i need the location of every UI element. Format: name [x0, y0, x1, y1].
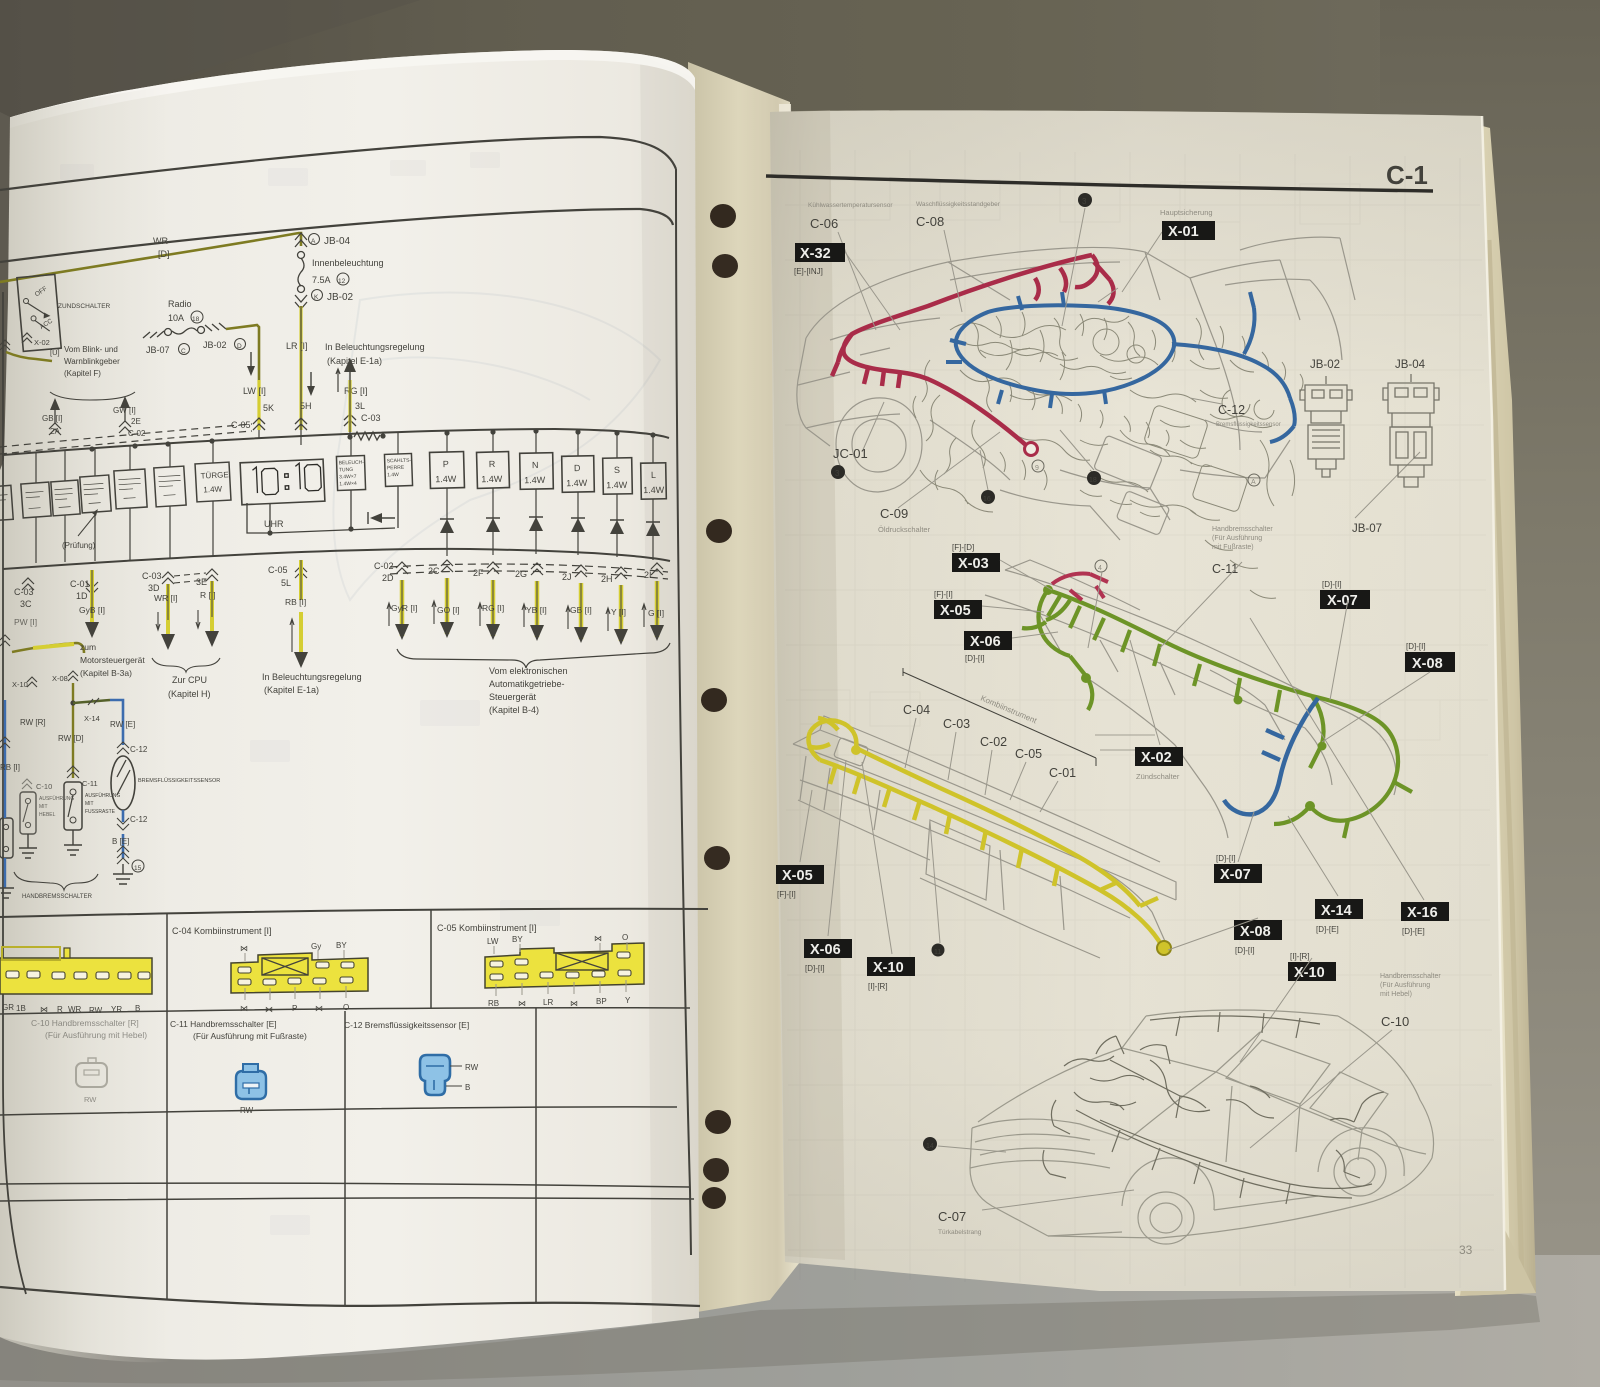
svg-text:LR: LR	[543, 998, 553, 1007]
svg-text:[E]-[INJ]: [E]-[INJ]	[794, 267, 823, 276]
svg-text:1.4W: 1.4W	[643, 485, 665, 495]
svg-text:C-02: C-02	[980, 735, 1007, 749]
svg-text:K: K	[314, 294, 319, 301]
svg-text:G [I]: G [I]	[648, 608, 664, 618]
svg-text:X-01: X-01	[1168, 224, 1199, 240]
svg-text:X-14: X-14	[84, 714, 100, 723]
svg-text:X-10: X-10	[1294, 965, 1325, 981]
svg-text:Vom Blink- und: Vom Blink- und	[64, 345, 118, 354]
svg-text:2H: 2H	[601, 574, 613, 584]
svg-text:B: B	[465, 1083, 470, 1092]
svg-text:[I]-[R]: [I]-[R]	[868, 982, 888, 991]
svg-text:Motorsteuergerät: Motorsteuergerät	[80, 655, 145, 665]
svg-text:JB-02: JB-02	[203, 340, 227, 350]
svg-text:[U]: [U]	[50, 348, 60, 357]
svg-text:Türkabelstrang: Türkabelstrang	[938, 1229, 982, 1236]
svg-text:C-01: C-01	[1049, 766, 1076, 780]
svg-text:7.5A: 7.5A	[312, 275, 331, 285]
svg-text:PERRE: PERRE	[387, 465, 405, 472]
svg-text:C-07: C-07	[938, 1209, 966, 1224]
svg-text:B: B	[135, 1004, 140, 1013]
svg-text:[D]-[I]: [D]-[I]	[1406, 642, 1426, 651]
svg-text:WR: WR	[68, 1005, 82, 1014]
svg-text:C-10: C-10	[36, 782, 52, 791]
svg-text:C-05: C-05	[268, 565, 288, 575]
svg-text:D: D	[574, 463, 581, 473]
svg-text:C-12: C-12	[1218, 403, 1245, 417]
svg-text:18: 18	[1089, 477, 1097, 484]
svg-text:C-12 Bremsflüssigkeitssensor: C-12 Bremsflüssigkeitssensor [E]	[344, 1020, 469, 1030]
svg-text:1.4W: 1.4W	[435, 474, 457, 485]
svg-text:RB [I]: RB [I]	[285, 597, 306, 607]
svg-text:GR: GR	[2, 1003, 14, 1012]
svg-text:C-1: C-1	[1386, 160, 1428, 190]
svg-text:⋈: ⋈	[570, 999, 578, 1008]
svg-text:R [I]: R [I]	[200, 590, 216, 600]
svg-text:3E: 3E	[196, 577, 207, 587]
svg-text:1D: 1D	[76, 591, 88, 601]
svg-text:⋈: ⋈	[594, 934, 602, 943]
svg-text:PW [I]: PW [I]	[14, 617, 37, 627]
svg-text:C-02: C-02	[374, 561, 394, 571]
svg-text:In Beleuchtungsregelung: In Beleuchtungsregelung	[325, 342, 425, 352]
svg-text:O: O	[622, 933, 628, 942]
svg-text:X-10: X-10	[12, 680, 28, 689]
svg-text:S: S	[614, 465, 620, 475]
svg-text:GO [I]: GO [I]	[437, 605, 460, 615]
svg-text:⋈: ⋈	[240, 1004, 248, 1013]
svg-text:X-06: X-06	[970, 634, 1001, 650]
svg-text:X-07: X-07	[1220, 867, 1251, 883]
svg-text:C: C	[181, 348, 186, 355]
svg-text:[D]-[I]: [D]-[I]	[1235, 946, 1255, 955]
svg-text:C-12: C-12	[130, 815, 148, 824]
svg-text:C-03: C-03	[361, 413, 381, 423]
svg-text:C-09: C-09	[880, 506, 908, 521]
svg-text:LR [I]: LR [I]	[286, 341, 308, 351]
svg-text:X-14: X-14	[1321, 903, 1352, 919]
svg-text:3: 3	[1082, 197, 1087, 206]
svg-text:1.4W: 1.4W	[524, 475, 546, 485]
svg-text:X-07: X-07	[1327, 593, 1358, 609]
svg-text:1.4W: 1.4W	[387, 472, 399, 478]
svg-text:YB [I]: YB [I]	[526, 605, 547, 615]
svg-text:[D]-[E]: [D]-[E]	[1316, 925, 1339, 934]
svg-text:RW: RW	[465, 1063, 479, 1072]
svg-text:X-16: X-16	[1407, 905, 1438, 921]
svg-text:FUSSRASTE: FUSSRASTE	[85, 809, 116, 815]
svg-text:zum: zum	[80, 642, 96, 652]
svg-text:14: 14	[926, 1143, 934, 1150]
svg-text:X-03: X-03	[958, 556, 989, 572]
svg-text:5K: 5K	[263, 403, 274, 413]
svg-text:RG [I]: RG [I]	[482, 603, 504, 613]
svg-text:2F: 2F	[473, 568, 484, 578]
svg-text:Waschflüssigkeitsstandgeber: Waschflüssigkeitsstandgeber	[916, 201, 1001, 208]
svg-text:C-04 Kombiinstrument [I]: C-04 Kombiinstrument [I]	[172, 926, 272, 936]
svg-text:(Kapitel H): (Kapitel H)	[168, 689, 211, 699]
svg-text:[D]-[I]: [D]-[I]	[1322, 580, 1342, 589]
svg-text:JB-07: JB-07	[1352, 523, 1382, 535]
svg-text:C-11: C-11	[1212, 562, 1238, 576]
svg-text:SCAHLTS-: SCAHLTS-	[387, 458, 412, 465]
svg-text:Vom elektronischen: Vom elektronischen	[489, 666, 568, 676]
svg-text:O: O	[343, 1003, 349, 1012]
svg-text:In Beleuchtungsregelung: In Beleuchtungsregelung	[262, 672, 362, 682]
svg-text:LW: LW	[487, 937, 499, 946]
svg-text:Y: Y	[625, 996, 631, 1005]
svg-text:TÜRGE: TÜRGE	[200, 470, 228, 480]
svg-text:(Kapitel B-4): (Kapitel B-4)	[489, 705, 539, 715]
svg-text:GyR [I]: GyR [I]	[391, 603, 417, 613]
svg-text:C-12: C-12	[130, 745, 148, 754]
svg-text:BREMSFLÜSSIGKEITSSENSOR: BREMSFLÜSSIGKEITSSENSOR	[138, 777, 220, 784]
svg-text:C-03: C-03	[943, 717, 970, 731]
svg-text:mit Hebel): mit Hebel)	[1380, 991, 1412, 998]
svg-text:(Kapitel F): (Kapitel F)	[64, 369, 101, 378]
svg-text:Steuergerät: Steuergerät	[489, 692, 537, 702]
svg-text:11: 11	[934, 949, 941, 956]
svg-text:C-01: C-01	[70, 579, 90, 589]
svg-text:Warnblinkgeber: Warnblinkgeber	[64, 357, 120, 366]
svg-text:Handbremsschalter: Handbremsschalter	[1380, 973, 1441, 980]
svg-text:X-32: X-32	[800, 246, 831, 262]
svg-text:Radio: Radio	[168, 299, 192, 309]
svg-text:(Kapitel E-1a): (Kapitel E-1a)	[327, 356, 382, 366]
svg-text:[D]-[E]: [D]-[E]	[1402, 927, 1425, 936]
svg-text:(Für Ausführung: (Für Ausführung	[1212, 535, 1262, 542]
svg-text:2I: 2I	[644, 570, 652, 580]
svg-text:9: 9	[1035, 465, 1039, 472]
svg-text:18: 18	[192, 316, 200, 323]
svg-text:BY: BY	[512, 935, 523, 944]
svg-text:Innenbeleuchtung: Innenbeleuchtung	[312, 258, 384, 268]
svg-text:2J: 2J	[562, 572, 572, 582]
svg-text:GW [I]: GW [I]	[113, 406, 136, 415]
svg-text:C-06: C-06	[810, 216, 838, 231]
svg-text:[D]-[I]: [D]-[I]	[1216, 854, 1236, 863]
svg-text:N: N	[532, 460, 539, 470]
svg-text:15: 15	[134, 865, 142, 872]
svg-text:1.4W: 1.4W	[203, 485, 223, 495]
svg-text:[D]: [D]	[158, 249, 170, 259]
svg-text:[F]-[D]: [F]-[D]	[952, 543, 974, 552]
svg-text:mit Fußraste): mit Fußraste)	[1212, 544, 1254, 551]
svg-text:X-02: X-02	[34, 338, 50, 347]
svg-text:⋈: ⋈	[240, 944, 248, 953]
svg-text:2C: 2C	[428, 566, 440, 576]
svg-text:MIT: MIT	[39, 804, 48, 810]
svg-text:A: A	[1251, 479, 1256, 486]
svg-text:Hauptsicherung: Hauptsicherung	[1160, 208, 1213, 217]
svg-text:[D]-[I]: [D]-[I]	[805, 964, 825, 973]
svg-text:10A: 10A	[168, 313, 184, 323]
svg-text:B [E]: B [E]	[112, 837, 129, 846]
svg-text:GB [I]: GB [I]	[42, 414, 62, 423]
svg-text:JB-02: JB-02	[1310, 359, 1340, 371]
svg-text:16: 16	[983, 496, 991, 503]
svg-text:RW [E]: RW [E]	[110, 720, 135, 729]
svg-text:12: 12	[338, 278, 346, 285]
svg-text:WR [I]: WR [I]	[154, 593, 178, 603]
svg-text:C-08: C-08	[916, 214, 944, 229]
svg-text:Y [I]: Y [I]	[611, 607, 626, 617]
svg-text:JB-04: JB-04	[324, 236, 351, 247]
svg-text:C-10: C-10	[1381, 1014, 1409, 1029]
svg-text:P: P	[443, 459, 449, 469]
svg-text:JB-02: JB-02	[327, 292, 354, 303]
svg-text:3: 3	[835, 469, 840, 478]
svg-text:Handbremsschalter: Handbremsschalter	[1212, 526, 1273, 533]
svg-text:L: L	[651, 470, 656, 480]
svg-text:4: 4	[1098, 565, 1102, 572]
svg-text:BY: BY	[336, 941, 347, 950]
svg-text:C-04: C-04	[903, 703, 930, 717]
svg-text:C-10 Handbremsschalter [R]: C-10 Handbremsschalter [R]	[31, 1018, 139, 1028]
svg-text:⋈: ⋈	[518, 999, 526, 1008]
svg-text:R: R	[489, 459, 496, 469]
svg-text:[F]-[I]: [F]-[I]	[777, 890, 796, 899]
svg-text:RW: RW	[89, 1006, 103, 1015]
svg-text:3L: 3L	[355, 401, 365, 411]
svg-text:GyB [I]: GyB [I]	[79, 605, 105, 615]
svg-text:Öldruckschalter: Öldruckschalter	[878, 525, 931, 534]
svg-text:RW: RW	[240, 1106, 254, 1115]
svg-text:[I]-[R]: [I]-[R]	[1290, 952, 1310, 961]
svg-text:(Prüfung): (Prüfung)	[62, 541, 96, 550]
svg-text:2G: 2G	[515, 569, 527, 579]
svg-text:GB [I]: GB [I]	[570, 605, 592, 615]
svg-text:HANDBREMSSCHALTER: HANDBREMSSCHALTER	[22, 894, 93, 900]
svg-text:[D]-[I]: [D]-[I]	[965, 654, 985, 663]
svg-text:RW: RW	[84, 1095, 97, 1104]
svg-text:MIT: MIT	[85, 801, 94, 807]
svg-text:Bremsflüssigkeitssensor: Bremsflüssigkeitssensor	[1216, 422, 1281, 428]
svg-text:C-11: C-11	[82, 779, 98, 788]
svg-text:X-08: X-08	[1240, 924, 1271, 940]
svg-text:3D: 3D	[148, 583, 160, 593]
svg-text:RB [I]: RB [I]	[0, 763, 20, 772]
svg-text:Zur CPU: Zur CPU	[172, 675, 207, 685]
svg-text:HEBEL: HEBEL	[39, 812, 56, 818]
svg-text:Gy: Gy	[311, 942, 321, 951]
svg-text:WR: WR	[153, 236, 168, 246]
svg-text:X-05: X-05	[940, 603, 971, 619]
svg-text:(Kapitel E-1a): (Kapitel E-1a)	[264, 685, 319, 695]
svg-text:BP: BP	[596, 997, 607, 1006]
svg-text:RW [R]: RW [R]	[20, 718, 46, 727]
svg-text:ZUNDSCHALTER: ZUNDSCHALTER	[58, 303, 111, 310]
svg-text:(Kapitel B-3a): (Kapitel B-3a)	[80, 668, 132, 678]
svg-text:1.4W: 1.4W	[481, 474, 503, 485]
svg-text:X-08: X-08	[1412, 656, 1443, 672]
svg-text:(Für Ausführung: (Für Ausführung	[1380, 982, 1430, 989]
svg-text:A: A	[311, 238, 316, 245]
svg-text:R: R	[57, 1005, 63, 1014]
svg-text:RB: RB	[488, 999, 499, 1008]
svg-text:[F]-[I]: [F]-[I]	[934, 590, 953, 599]
svg-text:D: D	[237, 343, 242, 350]
svg-text:AUSFÜHRUNG: AUSFÜHRUNG	[39, 795, 74, 802]
svg-text:1.4W×4: 1.4W×4	[339, 481, 357, 488]
svg-text:YR: YR	[111, 1005, 122, 1014]
svg-text:C-05 Kombiinstrument [I]: C-05 Kombiinstrument [I]	[437, 923, 537, 933]
svg-text:X-06: X-06	[810, 942, 841, 958]
svg-text:X-05: X-05	[782, 868, 813, 884]
svg-text:(Für Ausführung mit Fußraste): (Für Ausführung mit Fußraste)	[193, 1031, 307, 1041]
svg-text:1.4W: 1.4W	[606, 480, 628, 490]
svg-text:C-05: C-05	[1015, 747, 1042, 761]
svg-text:JB-07: JB-07	[146, 345, 170, 355]
svg-text:Automatikgetriebe-: Automatikgetriebe-	[489, 679, 565, 689]
svg-text:C-03: C-03	[142, 571, 162, 581]
svg-text:C-11 Handbremsschalter [E]: C-11 Handbremsschalter [E]	[170, 1019, 277, 1029]
svg-text:⋈: ⋈	[315, 1004, 323, 1013]
svg-text:LW [I]: LW [I]	[243, 386, 266, 396]
svg-text:JC-01: JC-01	[833, 446, 868, 461]
svg-text:X-08: X-08	[52, 674, 68, 683]
svg-text:X-10: X-10	[873, 960, 904, 976]
svg-text:Kühlwassertemperatursensor: Kühlwassertemperatursensor	[808, 202, 893, 209]
svg-text:Zündschalter: Zündschalter	[1136, 772, 1180, 781]
svg-text:BELEUCH-: BELEUCH-	[339, 460, 365, 467]
svg-text:5L: 5L	[281, 578, 291, 588]
svg-text:2D: 2D	[382, 573, 394, 583]
svg-text:3C: 3C	[20, 599, 32, 609]
svg-text:JB-04: JB-04	[1395, 359, 1426, 371]
svg-text:TUNG: TUNG	[339, 467, 353, 473]
svg-text:2A: 2A	[50, 427, 60, 436]
svg-text:(Für Ausführung mit Hebel): (Für Ausführung mit Hebel)	[45, 1030, 147, 1040]
svg-text:3.4W×7: 3.4W×7	[339, 474, 357, 481]
svg-text:⋈: ⋈	[40, 1005, 48, 1014]
svg-text:1.4W: 1.4W	[566, 478, 588, 488]
svg-text:⋈: ⋈	[265, 1005, 273, 1014]
svg-text:AUSFÜHRUNG: AUSFÜHRUNG	[85, 792, 120, 799]
svg-text:5H: 5H	[300, 401, 312, 411]
svg-text:UHR: UHR	[264, 519, 284, 529]
svg-text:1B: 1B	[16, 1004, 26, 1013]
svg-text:33: 33	[1459, 1243, 1473, 1257]
svg-text:RW [D]: RW [D]	[58, 734, 84, 743]
svg-text:2E: 2E	[131, 417, 141, 426]
svg-text:RG [I]: RG [I]	[344, 386, 368, 396]
svg-text:P: P	[292, 1004, 297, 1013]
svg-text:X-02: X-02	[1141, 750, 1172, 766]
